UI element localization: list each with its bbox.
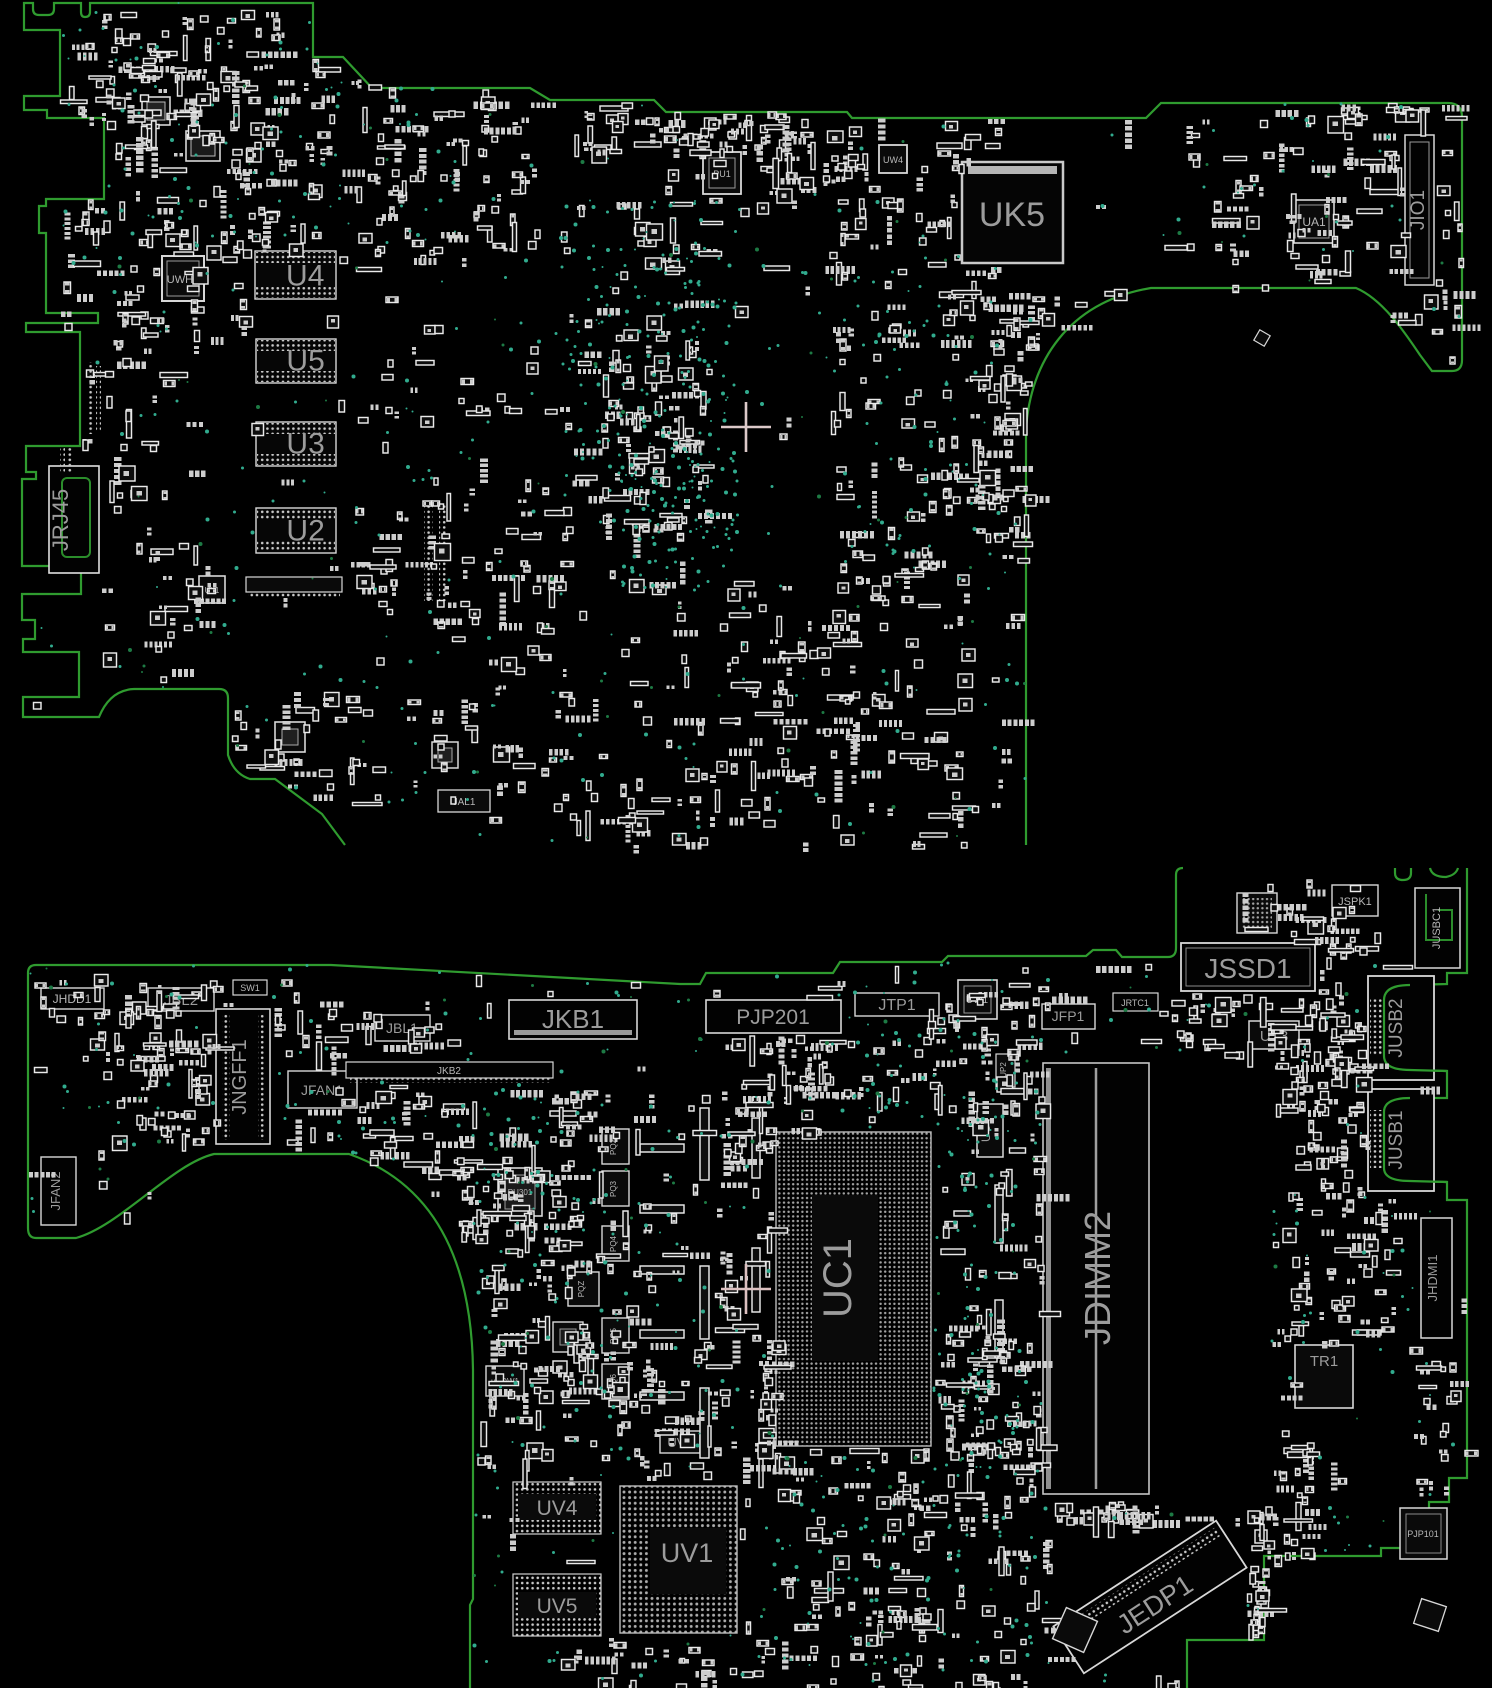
- svg-text:UW4: UW4: [883, 155, 903, 165]
- svg-text:U2: U2: [286, 514, 324, 547]
- svg-text:JHDD1: JHDD1: [53, 992, 92, 1006]
- svg-text:UV1: UV1: [661, 1538, 714, 1568]
- svg-text:JTP1: JTP1: [878, 997, 915, 1014]
- svg-text:PQ3: PQ3: [609, 1180, 618, 1197]
- svg-text:UV4: UV4: [537, 1497, 578, 1520]
- svg-text:JKB2: JKB2: [437, 1066, 461, 1077]
- svg-text:PJP101: PJP101: [1407, 1529, 1439, 1539]
- svg-text:PQZ: PQZ: [577, 1281, 586, 1298]
- svg-text:JUSB1: JUSB1: [1386, 1110, 1407, 1169]
- svg-text:JUSB2: JUSB2: [1386, 998, 1407, 1057]
- svg-text:UV5: UV5: [537, 1595, 578, 1618]
- svg-text:JKB1: JKB1: [542, 1004, 604, 1034]
- svg-text:U5: U5: [286, 345, 324, 378]
- svg-text:JDIMM2: JDIMM2: [1077, 1211, 1118, 1345]
- svg-text:U4: U4: [286, 260, 324, 293]
- svg-text:JRTC1: JRTC1: [1121, 998, 1149, 1008]
- svg-text:PQ4: PQ4: [609, 1235, 618, 1252]
- svg-text:JSSD1: JSSD1: [1204, 953, 1291, 984]
- svg-text:JHDMI1: JHDMI1: [1425, 1255, 1440, 1302]
- svg-text:JFP1: JFP1: [1052, 1008, 1085, 1024]
- svg-text:SW1: SW1: [240, 983, 260, 993]
- svg-text:PJP201: PJP201: [736, 1006, 810, 1029]
- svg-text:UK5: UK5: [979, 196, 1045, 234]
- svg-text:JRJ45: JRJ45: [48, 489, 73, 551]
- svg-text:UC1: UC1: [816, 1238, 860, 1318]
- svg-text:U3: U3: [286, 428, 324, 461]
- svg-text:TR1: TR1: [1310, 1353, 1338, 1370]
- svg-text:JIO1: JIO1: [1408, 190, 1429, 230]
- svg-text:JUSBC1: JUSBC1: [1431, 907, 1443, 949]
- svg-text:UA1: UA1: [1302, 215, 1326, 229]
